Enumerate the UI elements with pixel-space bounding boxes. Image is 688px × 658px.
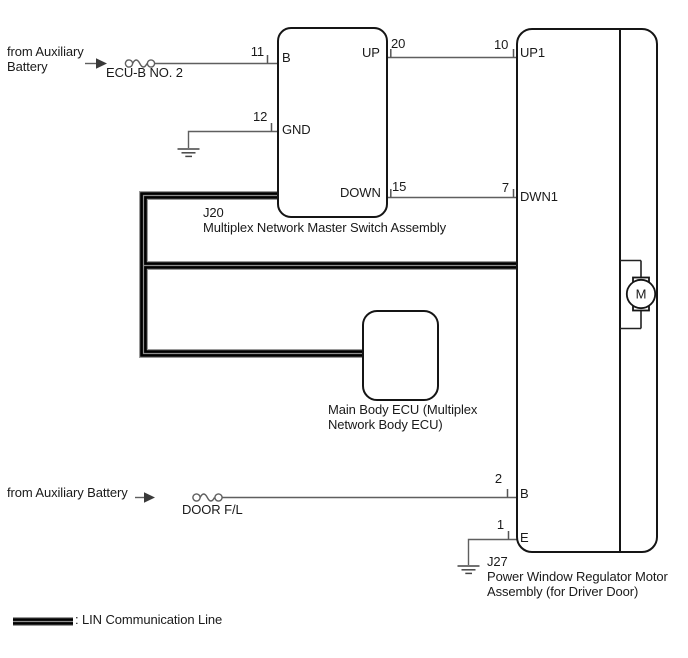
j27-name: Power Window Regulator Motor Assembly (f… <box>487 569 679 599</box>
j20-pin-up-number: 20 <box>391 36 405 51</box>
source-label-bottom: from Auxiliary Battery <box>7 485 128 500</box>
j20-pin-gnd-label: GND <box>282 122 311 137</box>
fuse-icon-bottom <box>193 494 222 501</box>
arrow-icon-bottom <box>144 492 155 503</box>
j20-pin-gnd-number: 12 <box>253 109 267 124</box>
j20-pin-b-number: 11 <box>250 44 264 59</box>
wire-j20-gnd-to-ground <box>189 132 279 149</box>
j27-pin-e-number: 1 <box>490 517 504 532</box>
j20-ref: J20 <box>203 205 224 220</box>
j27-pin-up1-label: UP1 <box>520 45 545 60</box>
fuse-label-bottom: DOOR F/L <box>182 502 243 517</box>
ground-icon-j20 <box>178 149 200 156</box>
j27-ref: J27 <box>487 554 508 569</box>
wiring-diagram: M from Auxiliary Battery ECU-B NO. 2 11 … <box>0 0 688 658</box>
j27-pin-dwn1-label: DWN1 <box>520 189 558 204</box>
main-body-ecu-name: Main Body ECU (Multiplex Network Body EC… <box>328 402 488 432</box>
j20-pin-down-number: 15 <box>392 179 406 194</box>
j27-pin-b-number: 2 <box>488 471 502 486</box>
fuse-label-top: ECU-B NO. 2 <box>106 65 183 80</box>
j20-pin-up-label: UP <box>362 45 380 60</box>
j27-connector-box <box>516 28 658 553</box>
j27-pin-b-label: B <box>520 486 529 501</box>
j27-pin-e-label: E <box>520 530 529 545</box>
j27-pin-up1-number: 10 <box>494 37 508 52</box>
legend-label: : LIN Communication Line <box>75 612 222 627</box>
main-body-ecu-box <box>362 310 439 401</box>
j20-pin-down-label: DOWN <box>340 185 381 200</box>
j20-name: Multiplex Network Master Switch Assembly <box>203 220 446 235</box>
ground-icon-j27 <box>458 566 480 573</box>
j20-pin-b-label: B <box>282 50 291 65</box>
source-label-top: from Auxiliary Battery <box>7 44 101 74</box>
j27-pin-dwn1-number: 7 <box>495 180 509 195</box>
